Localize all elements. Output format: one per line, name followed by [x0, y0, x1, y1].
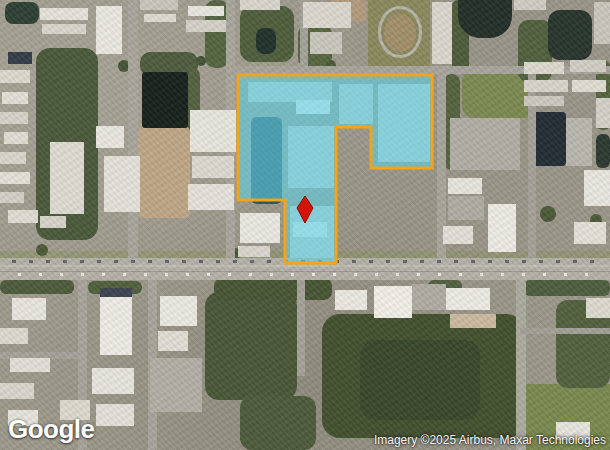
- map-feature-buildings: [248, 82, 332, 102]
- map-feature-buildings: [310, 32, 342, 54]
- map-feature-buildings: [303, 2, 351, 28]
- map-feature-buildings: [8, 52, 32, 64]
- map-feature-buildings: [188, 184, 234, 210]
- map-feature-buildings: [586, 298, 610, 318]
- satellite-map-viewport[interactable]: Google Imagery ©2025 Airbus, Maxar Techn…: [0, 0, 610, 450]
- map-feature-ground: [240, 396, 316, 450]
- map-feature-buildings: [40, 216, 66, 228]
- map-feature-water: [596, 134, 610, 168]
- map-feature-buildings: [524, 96, 564, 106]
- map-feature-buildings: [100, 288, 132, 297]
- map-feature-buildings: [566, 118, 592, 166]
- map-feature-buildings: [524, 62, 564, 74]
- google-logo[interactable]: Google: [8, 414, 95, 445]
- map-feature-ground: [214, 278, 332, 300]
- map-feature-buildings: [96, 404, 134, 426]
- map-feature-buildings: [448, 196, 484, 220]
- map-feature-water: [458, 0, 512, 38]
- map-feature-buildings: [104, 156, 140, 212]
- map-feature-buildings: [374, 286, 412, 318]
- map-feature-buildings: [448, 178, 482, 194]
- map-feature-ground: [205, 292, 297, 400]
- map-feature-ground: [196, 56, 206, 66]
- map-feature-water: [532, 112, 566, 166]
- map-feature-buildings: [12, 298, 46, 320]
- map-feature-ground: [138, 126, 190, 218]
- map-feature-buildings: [335, 290, 367, 310]
- map-feature-buildings: [0, 192, 24, 203]
- map-feature-buildings: [2, 92, 28, 104]
- map-feature-buildings: [0, 70, 30, 83]
- map-feature-buildings: [144, 14, 176, 22]
- map-feature-ground: [540, 206, 556, 222]
- map-feature-buildings: [432, 2, 452, 64]
- map-feature-buildings: [450, 118, 520, 170]
- map-feature-water: [251, 117, 282, 204]
- map-feature-buildings: [240, 213, 280, 243]
- map-feature-buildings: [296, 100, 330, 114]
- map-feature-buildings: [240, 0, 280, 10]
- map-feature-water: [5, 2, 39, 24]
- map-feature-roads: [520, 328, 610, 334]
- map-feature-water: [548, 10, 592, 60]
- map-feature-buildings: [378, 6, 422, 58]
- map-feature-buildings: [572, 80, 606, 92]
- map-feature-buildings: [570, 60, 606, 72]
- map-feature-roads: [18, 273, 598, 276]
- map-feature-ground: [36, 244, 48, 256]
- map-feature-water: [256, 28, 276, 54]
- map-feature-buildings: [160, 296, 197, 326]
- map-feature-buildings: [584, 170, 610, 206]
- map-feature-buildings: [100, 297, 132, 355]
- map-feature-buildings: [150, 358, 202, 412]
- map-feature-roads: [128, 0, 138, 258]
- map-feature-buildings: [4, 132, 28, 144]
- map-feature-roads: [528, 66, 536, 258]
- map-feature-buildings: [288, 126, 334, 188]
- map-feature-buildings: [488, 204, 516, 252]
- map-feature-buildings: [192, 156, 234, 178]
- imagery-attribution: Imagery ©2025 Airbus, Maxar Technologies: [374, 433, 606, 447]
- map-feature-buildings: [40, 8, 88, 20]
- map-feature-buildings: [0, 383, 34, 399]
- map-feature-roads: [0, 271, 610, 272]
- map-feature-buildings: [188, 6, 224, 16]
- satellite-imagery: [0, 0, 610, 450]
- map-feature-buildings: [524, 80, 568, 92]
- map-feature-buildings: [450, 314, 496, 328]
- map-feature-buildings: [158, 331, 188, 351]
- map-feature-buildings: [96, 6, 122, 54]
- map-feature-buildings: [514, 0, 546, 10]
- map-feature-buildings: [443, 226, 473, 244]
- map-feature-roads: [297, 280, 305, 376]
- map-feature-buildings: [594, 2, 610, 44]
- map-feature-buildings: [574, 222, 606, 244]
- map-feature-ground: [0, 280, 74, 294]
- map-feature-buildings: [378, 84, 430, 162]
- map-feature-buildings: [596, 98, 610, 128]
- map-feature-ground: [524, 280, 610, 296]
- map-feature-buildings: [0, 152, 26, 164]
- map-feature-buildings: [190, 110, 236, 152]
- map-feature-buildings: [0, 112, 28, 124]
- map-feature-roads: [0, 265, 610, 267]
- map-feature-buildings: [50, 142, 84, 214]
- map-feature-water: [142, 72, 188, 128]
- map-feature-buildings: [339, 84, 373, 124]
- map-feature-roads: [12, 260, 600, 263]
- map-feature-buildings: [92, 368, 134, 394]
- map-feature-roads: [516, 280, 526, 450]
- map-feature-ground: [360, 340, 480, 420]
- map-feature-buildings: [412, 284, 446, 310]
- map-feature-buildings: [8, 210, 38, 223]
- map-feature-buildings: [0, 172, 30, 184]
- map-feature-buildings: [96, 126, 124, 148]
- map-feature-buildings: [293, 222, 327, 237]
- map-feature-buildings: [140, 0, 178, 10]
- map-feature-buildings: [42, 24, 86, 34]
- map-feature-buildings: [238, 246, 270, 257]
- map-feature-buildings: [186, 20, 226, 32]
- map-feature-buildings: [446, 288, 490, 310]
- map-feature-buildings: [10, 358, 50, 372]
- map-feature-buildings: [0, 328, 28, 344]
